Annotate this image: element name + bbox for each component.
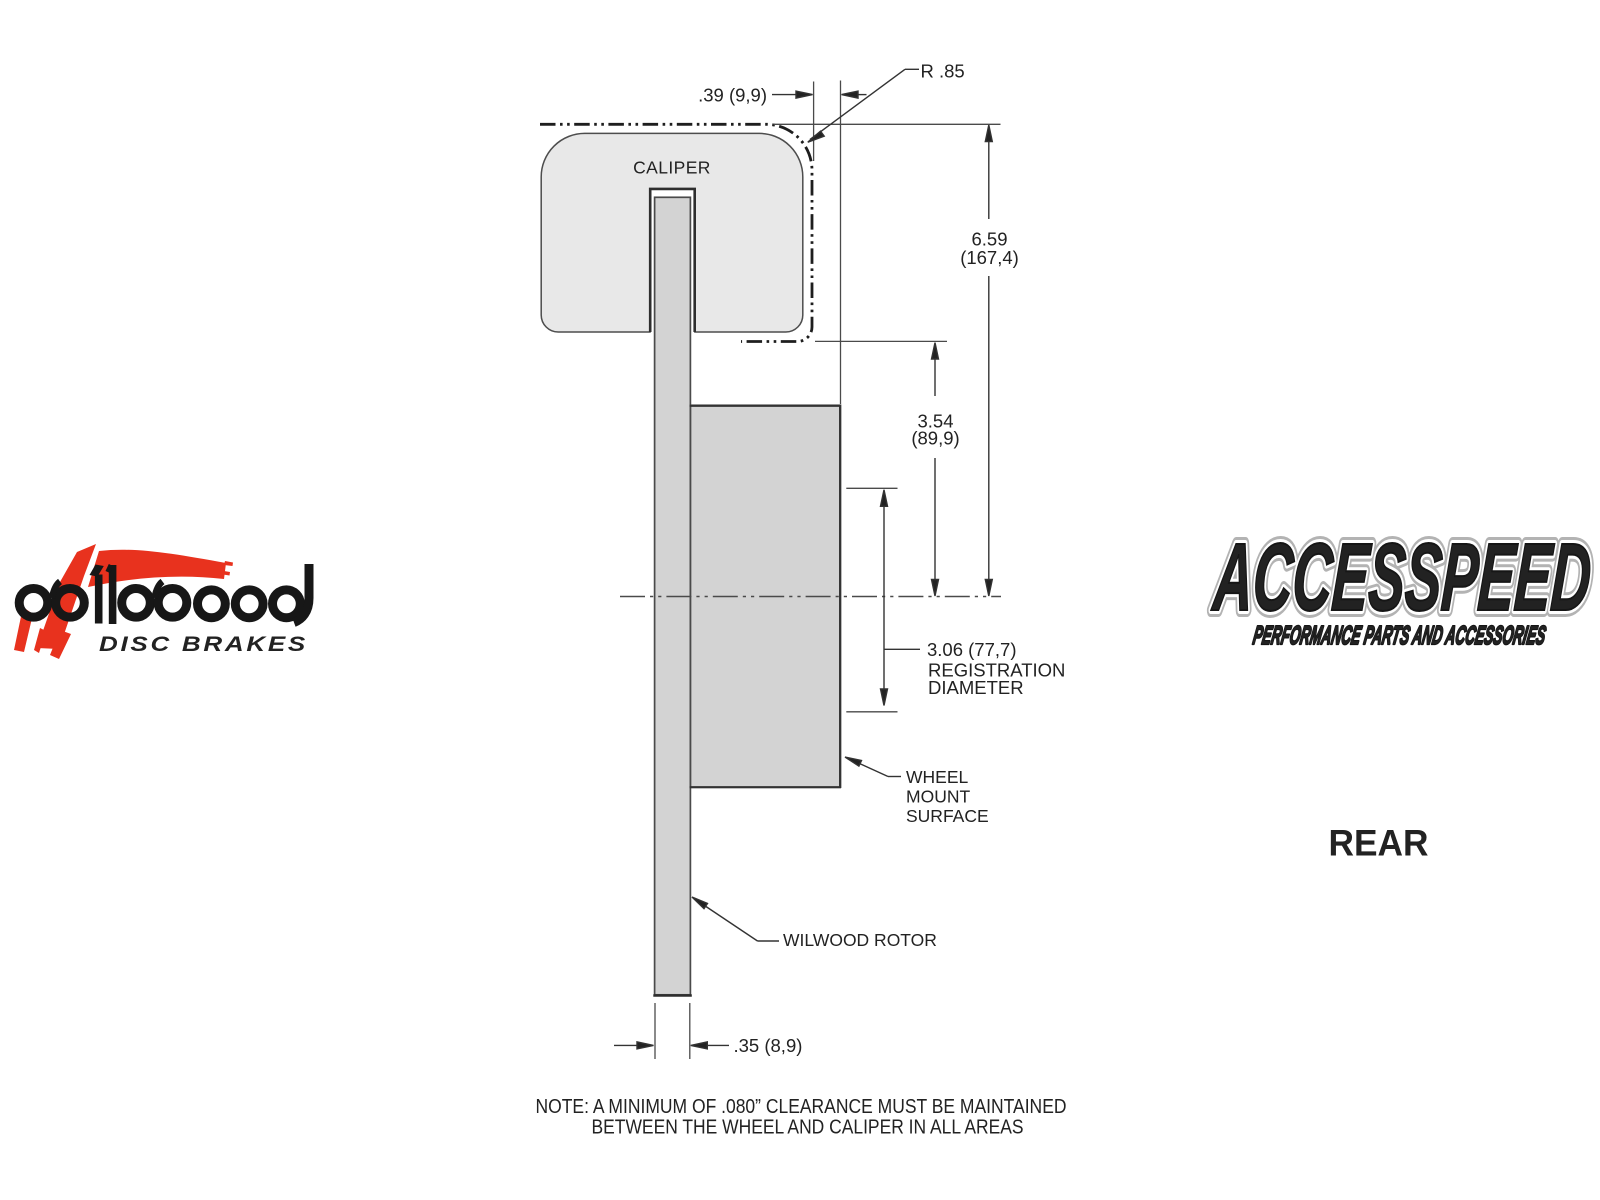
svg-text:(167,4): (167,4) [960, 247, 1019, 268]
svg-text:NOTE: A MINIMUM OF .080” CLEAR: NOTE: A MINIMUM OF .080” CLEARANCE MUST … [536, 1096, 1067, 1118]
svg-text:WILWOOD ROTOR: WILWOOD ROTOR [783, 930, 937, 950]
svg-text:DISC BRAKES: DISC BRAKES [99, 633, 308, 656]
svg-text:MOUNT: MOUNT [906, 787, 970, 807]
svg-text:(89,9): (89,9) [911, 428, 959, 449]
svg-text:R .85: R .85 [921, 61, 965, 82]
svg-text:WHEEL: WHEEL [906, 767, 969, 787]
svg-text:3.06 (77,7): 3.06 (77,7) [927, 639, 1016, 660]
svg-text:REAR: REAR [1329, 822, 1429, 864]
svg-text:.35 (8,9): .35 (8,9) [734, 1035, 803, 1056]
svg-text:BETWEEN THE WHEEL AND CALIPER: BETWEEN THE WHEEL AND CALIPER IN ALL ARE… [592, 1117, 1024, 1139]
svg-text:PERFORMANCE PARTS AND ACCESSOR: PERFORMANCE PARTS AND ACCESSORIES [1251, 620, 1549, 650]
svg-text:.39 (9,9): .39 (9,9) [698, 85, 767, 106]
svg-text:ACCESSPEED: ACCESSPEED [1209, 523, 1594, 631]
svg-text:DIAMETER: DIAMETER [928, 677, 1024, 698]
svg-text:CALIPER: CALIPER [633, 158, 711, 178]
svg-text:SURFACE: SURFACE [906, 806, 989, 826]
